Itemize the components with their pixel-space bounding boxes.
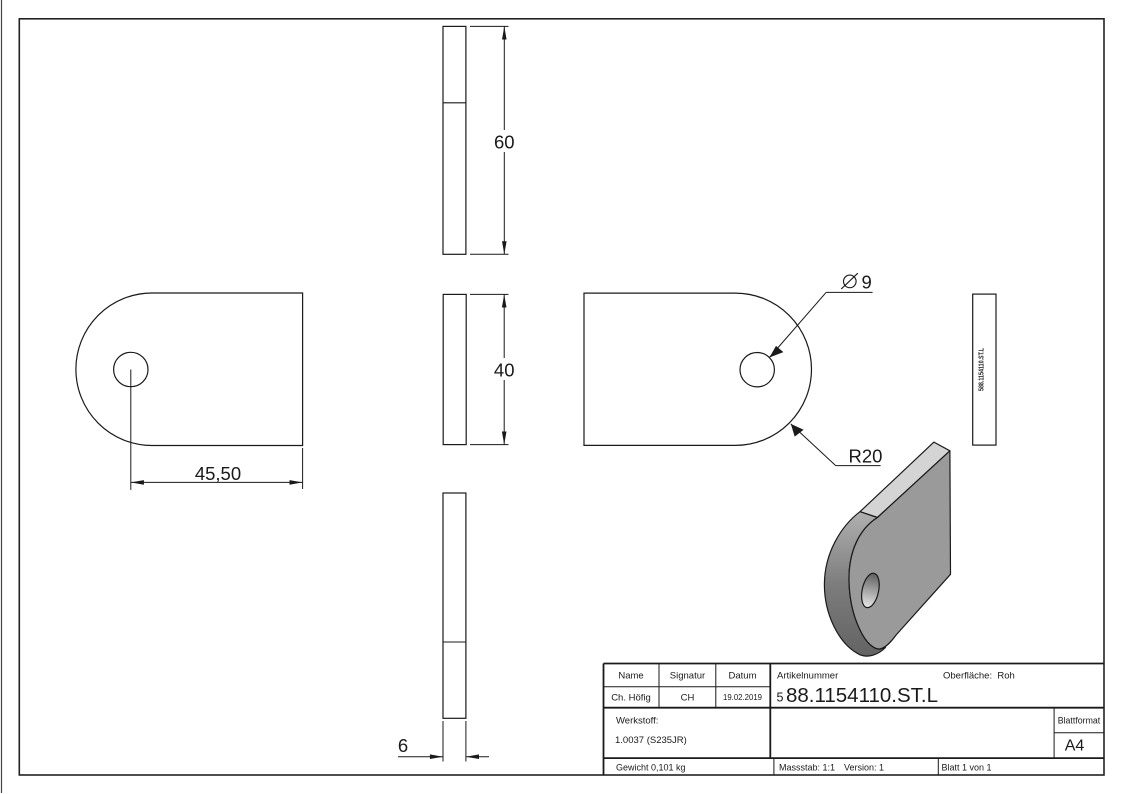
svg-text:6: 6: [398, 735, 408, 756]
svg-text:CH: CH: [681, 693, 695, 704]
svg-text:1.0037 (S235JR): 1.0037 (S235JR): [615, 735, 687, 746]
svg-text:88.1154110.ST.L: 88.1154110.ST.L: [786, 684, 938, 707]
svg-text:R20: R20: [849, 446, 883, 467]
svg-text:Blatt 1 von 1: Blatt 1 von 1: [942, 763, 992, 773]
svg-text:Oberfläche: Roh: Oberfläche: Roh: [943, 671, 1015, 682]
svg-text:45,50: 45,50: [195, 463, 241, 484]
svg-text:Version: 1: Version: 1: [844, 763, 884, 773]
svg-text:A4: A4: [1065, 738, 1085, 755]
svg-text:Massstab: 1:1: Massstab: 1:1: [779, 763, 835, 773]
svg-text:Werkstoff:: Werkstoff:: [616, 716, 658, 727]
svg-text:Gewicht 0,101 kg: Gewicht 0,101 kg: [616, 763, 686, 773]
svg-text:Name: Name: [618, 671, 643, 682]
svg-text:Ch. Höfig: Ch. Höfig: [611, 693, 651, 704]
svg-text:19.02.2019: 19.02.2019: [723, 693, 762, 702]
svg-text:40: 40: [494, 360, 515, 381]
svg-text:Datum: Datum: [729, 671, 757, 682]
svg-text:9: 9: [862, 272, 872, 293]
svg-text:Signatur: Signatur: [670, 671, 705, 682]
svg-text:5: 5: [777, 691, 784, 705]
svg-text:Artikelnummer: Artikelnummer: [777, 671, 838, 682]
svg-text:588.1154110.ST.L: 588.1154110.ST.L: [977, 348, 986, 391]
svg-text:Blattformat: Blattformat: [1058, 716, 1101, 726]
svg-text:60: 60: [494, 131, 515, 152]
